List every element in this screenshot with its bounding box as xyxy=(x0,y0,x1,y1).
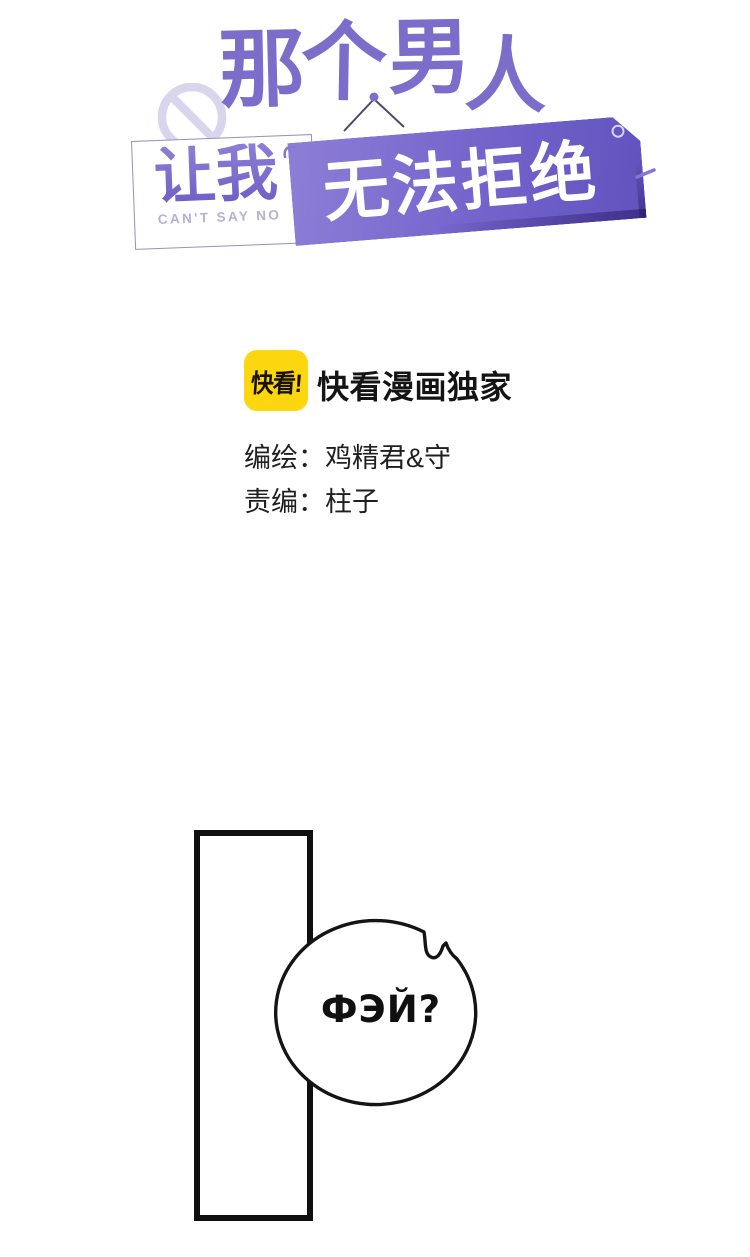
comic-panel-area: ФЭЙ? xyxy=(0,0,750,1257)
speech-bubble-text: ФЭЙ? xyxy=(296,988,466,1031)
comic-title-page: 那 个 男 人 让我 CAN'T SAY NO 无法拒绝 快看! 快看漫 xyxy=(0,0,750,1257)
